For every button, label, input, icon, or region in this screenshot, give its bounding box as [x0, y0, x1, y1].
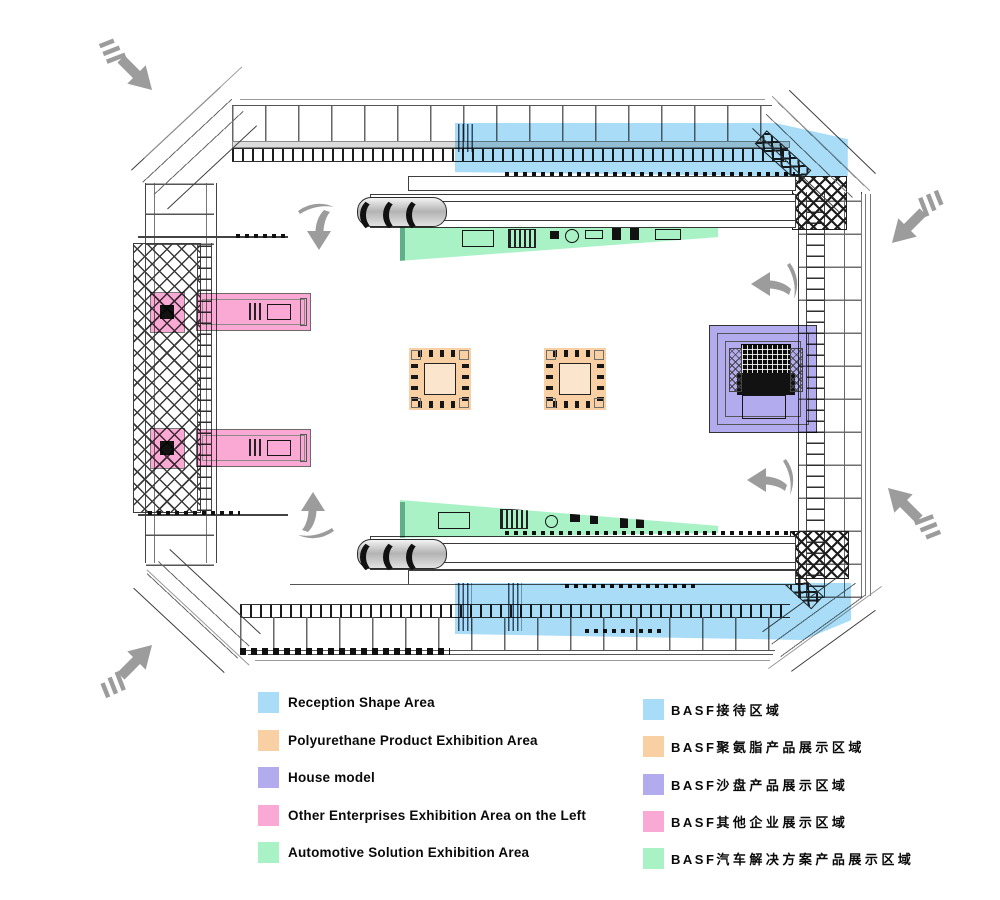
- legend-swatch-other: [643, 811, 664, 832]
- legend-row-reception: Reception Shape Area: [258, 692, 435, 713]
- tube-cylinders-bottom: [357, 539, 447, 569]
- polyurethane-table-1: [409, 348, 471, 410]
- exhibit-block: [570, 514, 580, 522]
- other-enterprises-counter-1: [196, 293, 311, 331]
- blue-dashes: [585, 629, 665, 633]
- legend-swatch-house: [258, 767, 279, 788]
- reception-area-bottom: [455, 580, 855, 640]
- counter-core: [160, 441, 174, 455]
- exhibit-grill: [508, 229, 536, 248]
- table-corner: [546, 398, 556, 408]
- flow-arrow-left-upper: [749, 259, 803, 303]
- table-corner: [459, 398, 469, 408]
- exhibit-block: [550, 231, 559, 239]
- other-enterprises-block-2: [150, 428, 185, 469]
- legend-label: BASF汽车解决方案产品展示区域: [671, 849, 914, 868]
- table-top: [559, 363, 591, 395]
- wall-right-outer-lines: [861, 194, 872, 596]
- house-model-area: [709, 325, 817, 433]
- model-base: [742, 395, 786, 419]
- exhibit-circle: [545, 515, 558, 528]
- legend-zh-row-automotive: BASF汽车解决方案产品展示区域: [643, 848, 914, 869]
- flow-arrow-left-lower: [745, 455, 799, 499]
- model-brace-left: [729, 348, 742, 392]
- car-exhibit: [462, 230, 494, 247]
- roof-outline-top: [240, 99, 765, 100]
- entrance-arrow-top-right: [873, 176, 959, 262]
- counter-case: [267, 304, 291, 320]
- exhibit-grill: [500, 509, 528, 529]
- exhibit-case: [585, 230, 603, 239]
- green-edge-stripe: [400, 227, 405, 263]
- blue-column-stripes: [508, 583, 522, 631]
- other-enterprises-block-1: [150, 292, 185, 333]
- counter-ticks: [249, 303, 264, 320]
- truss-x-bottom-right: [790, 531, 849, 579]
- legend-label: Polyurethane Product Exhibition Area: [288, 733, 538, 748]
- legend-label: Other Enterprises Exhibition Area on the…: [288, 808, 586, 823]
- legend-zh-row-house: BASF沙盘产品展示区域: [643, 774, 848, 795]
- chairs-right: [597, 357, 604, 401]
- green-edge-stripe: [400, 502, 405, 538]
- car-exhibit: [438, 512, 470, 529]
- chairs-left: [411, 357, 418, 401]
- table-corner: [546, 350, 556, 360]
- exhibit-block: [630, 228, 639, 240]
- legend-zh-row-polyurethane: BASF聚氨脂产品展示区域: [643, 736, 865, 757]
- exhibition-floor-plan: Reception Shape Area Polyurethane Produc…: [0, 0, 1000, 900]
- counter-endcap: [300, 298, 307, 326]
- counter-case: [267, 440, 291, 456]
- exhibit-block: [636, 518, 644, 528]
- legend-swatch-polyurethane: [643, 736, 664, 757]
- legend-row-automotive: Automotive Solution Exhibition Area: [258, 842, 529, 863]
- tube-cylinders-top: [357, 197, 447, 227]
- entrance-arrow-bottom-right: [869, 469, 955, 555]
- chairs-right: [462, 357, 469, 401]
- entrance-arrow-top-left: [85, 23, 171, 109]
- entrance-arrow-bottom-left: [85, 626, 171, 712]
- chairs-left: [546, 357, 553, 401]
- table-corner: [411, 350, 421, 360]
- counter-core: [160, 305, 174, 319]
- blue-column-stripes: [458, 124, 476, 152]
- model-body: [737, 373, 795, 395]
- legend-label: House model: [288, 770, 375, 785]
- legend-zh-row-other: BASF其他企业展示区域: [643, 811, 848, 832]
- legend-label: BASF接待区域: [671, 700, 782, 719]
- table-corner: [594, 398, 604, 408]
- chairs-bottom: [418, 401, 462, 408]
- legend-row-house: House model: [258, 767, 375, 788]
- truss-lattice-panel: [133, 243, 201, 513]
- counter-ticks: [249, 439, 264, 456]
- cylinder-arc: [406, 540, 436, 574]
- chairs-bottom: [553, 401, 597, 408]
- exhibit-block: [620, 518, 628, 528]
- legend-row-other: Other Enterprises Exhibition Area on the…: [258, 805, 586, 826]
- flow-arrow-up: [294, 490, 338, 544]
- exhibit-block: [612, 228, 621, 240]
- shelf-dashes-top: [236, 234, 290, 238]
- wall-left-ladder: [197, 243, 212, 511]
- legend-zh-row-reception: BASF接待区域: [643, 699, 782, 720]
- cylinder-arc: [406, 198, 436, 232]
- legend-swatch-automotive: [643, 848, 664, 869]
- legend-label: Reception Shape Area: [288, 695, 435, 710]
- table-corner: [594, 350, 604, 360]
- exhibit-case: [655, 229, 681, 240]
- hanging-beam-bottom: [408, 570, 796, 585]
- legend-swatch-automotive: [258, 842, 279, 863]
- model-brace-right: [790, 348, 803, 392]
- polyurethane-table-2: [544, 348, 606, 410]
- chairs-top: [553, 350, 597, 357]
- legend-label: BASF聚氨脂产品展示区域: [671, 737, 865, 756]
- legend-row-polyurethane: Polyurethane Product Exhibition Area: [258, 730, 538, 751]
- roof-outline-bottom: [255, 660, 770, 661]
- blue-dashes: [565, 584, 700, 588]
- other-enterprises-counter-2: [196, 429, 311, 467]
- legend-swatch-reception: [258, 692, 279, 713]
- counter-endcap: [300, 434, 307, 462]
- legend-label: BASF其他企业展示区域: [671, 812, 848, 831]
- chairs-top: [418, 350, 462, 357]
- legend-swatch-other: [258, 805, 279, 826]
- legend-swatch-reception: [643, 699, 664, 720]
- legend-label: BASF沙盘产品展示区域: [671, 775, 848, 794]
- table-corner: [459, 350, 469, 360]
- shelf-dashes-bottom: [148, 511, 240, 515]
- hanging-beam-top: [408, 176, 796, 191]
- flow-arrow-down: [294, 198, 338, 252]
- table-corner: [411, 398, 421, 408]
- model-grid-roof: [741, 344, 791, 376]
- legend-swatch-house: [643, 774, 664, 795]
- table-top: [424, 363, 456, 395]
- exhibit-circle: [565, 229, 579, 243]
- exhibit-block: [590, 512, 598, 524]
- legend-swatch-polyurethane: [258, 730, 279, 751]
- automotive-area-bottom: [400, 496, 720, 540]
- wall-bottom-dashes: [240, 648, 450, 655]
- legend-label: Automotive Solution Exhibition Area: [288, 845, 529, 860]
- blue-column-stripes: [458, 583, 472, 631]
